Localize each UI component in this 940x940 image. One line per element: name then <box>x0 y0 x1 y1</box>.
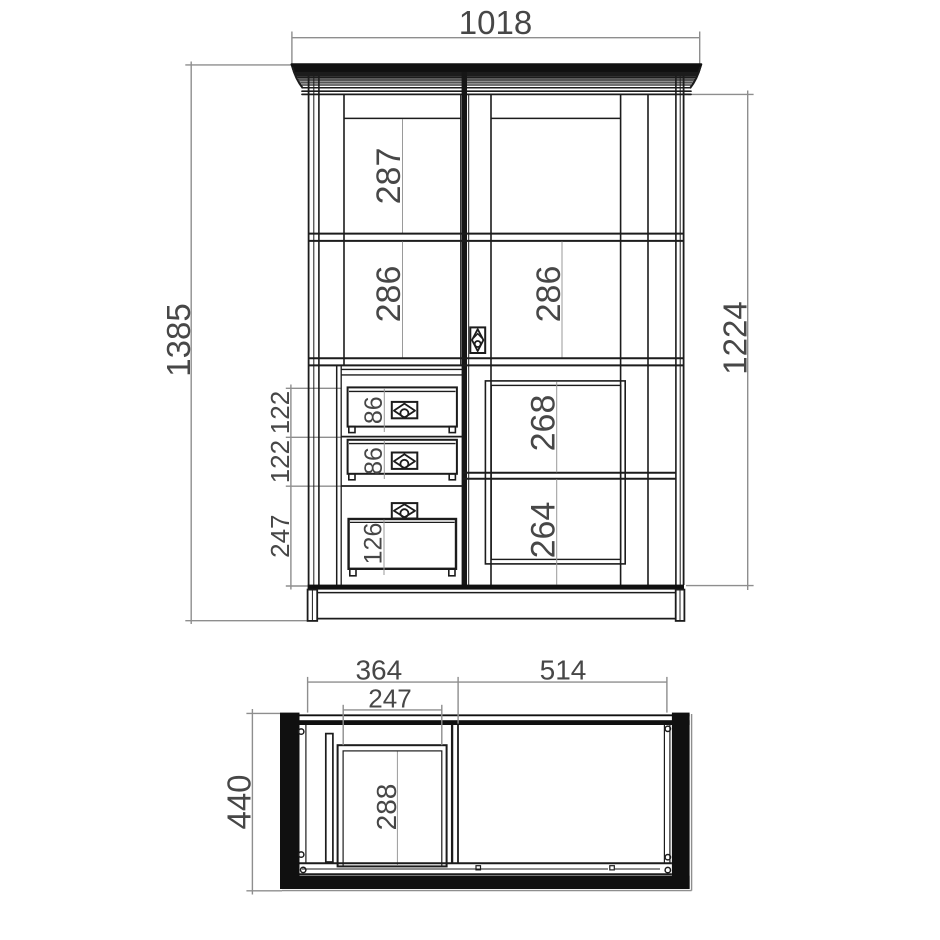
svg-text:440: 440 <box>220 774 257 829</box>
svg-text:86: 86 <box>360 396 388 424</box>
svg-text:287: 287 <box>370 148 408 205</box>
svg-text:288: 288 <box>371 784 402 831</box>
svg-text:247: 247 <box>265 515 295 558</box>
svg-text:514: 514 <box>540 655 587 686</box>
svg-text:1385: 1385 <box>160 303 197 376</box>
svg-text:1018: 1018 <box>459 4 532 41</box>
svg-text:126: 126 <box>360 523 388 565</box>
svg-text:286: 286 <box>370 266 408 323</box>
svg-text:122: 122 <box>265 440 295 483</box>
svg-text:364: 364 <box>355 655 402 686</box>
svg-text:268: 268 <box>524 395 562 452</box>
svg-text:122: 122 <box>265 391 295 434</box>
svg-text:264: 264 <box>524 502 562 559</box>
svg-text:1224: 1224 <box>716 301 753 374</box>
svg-text:286: 286 <box>530 266 568 323</box>
svg-text:247: 247 <box>368 683 411 713</box>
svg-text:86: 86 <box>360 447 388 475</box>
